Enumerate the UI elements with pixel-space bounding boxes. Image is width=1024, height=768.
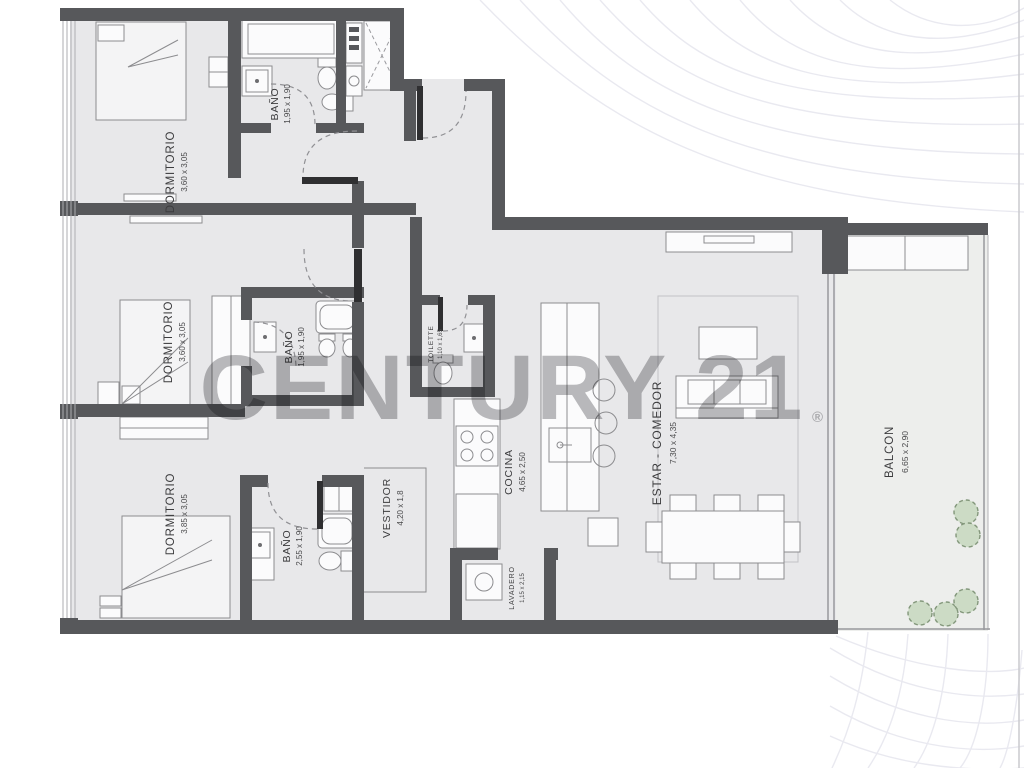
chair (714, 563, 740, 579)
chair (670, 495, 696, 511)
room-label-bano-top: BAÑO (268, 88, 281, 121)
room-label-dormitorio-mid: DORMITORIO (163, 301, 175, 384)
room-label-vestidor: VESTIDOR (381, 478, 393, 538)
balcony-floor (836, 223, 988, 631)
bathtub (316, 301, 358, 333)
room-label-cocina: COCINA (503, 449, 515, 495)
chair (784, 522, 800, 552)
room-dims-dormitorio-mid: 3,60 x 3,05 (178, 322, 187, 362)
plant (954, 589, 978, 613)
room-dims-bano-top: 1,95 x 1,90 (283, 84, 292, 124)
end-counter (588, 518, 618, 546)
chair (714, 495, 740, 511)
background-pattern-bottom-right (830, 632, 1024, 768)
room-dims-balcon: 6,65 x 2,90 (900, 431, 910, 473)
room-dims-dormitorio-top: 3,60 x 3,05 (180, 152, 189, 192)
room-label-lavadero: LAVADERO (509, 566, 516, 610)
background-pattern-top-right (480, 0, 1024, 212)
room-label-dormitorio-bottom: DORMITORIO (165, 473, 177, 556)
room-dims-vestidor: 4,20 x 1,8 (396, 490, 405, 526)
chair (758, 495, 784, 511)
toilet (319, 551, 353, 571)
plant (956, 523, 980, 547)
room-label-dormitorio-top: DORMITORIO (165, 131, 177, 214)
bathtub (318, 514, 356, 548)
chair (670, 563, 696, 579)
water-heater (346, 66, 362, 96)
room-label-bano-bottom: BAÑO (280, 530, 293, 563)
chair (758, 563, 784, 579)
room-label-balcon: BALCON (884, 426, 896, 478)
vanity-counter (242, 20, 340, 58)
room-dims-dormitorio-bottom: 3,85 x 3,05 (180, 494, 189, 534)
plant (954, 500, 978, 524)
room-dims-bano-bottom: 2,55 x 1,90 (295, 526, 304, 566)
plant (908, 601, 932, 625)
floor-plan: DORMITORIO 3,60 x 3,05 BAÑO 1,95 x 1,90 … (0, 0, 1024, 768)
registered-mark: ® (812, 409, 825, 426)
watermark: CENTURY 21 ® (200, 337, 826, 439)
room-dims-lavadero: 1,15 x 2,15 (520, 572, 526, 602)
tv-console (666, 232, 792, 252)
chair (646, 522, 662, 552)
washer (466, 564, 502, 600)
toilet (318, 58, 336, 89)
laundry-fixtures (466, 564, 502, 600)
room-dims-cocina: 4,65 x 2,50 (518, 452, 527, 492)
watermark-text: CENTURY 21 (200, 337, 805, 439)
plant (934, 602, 958, 626)
